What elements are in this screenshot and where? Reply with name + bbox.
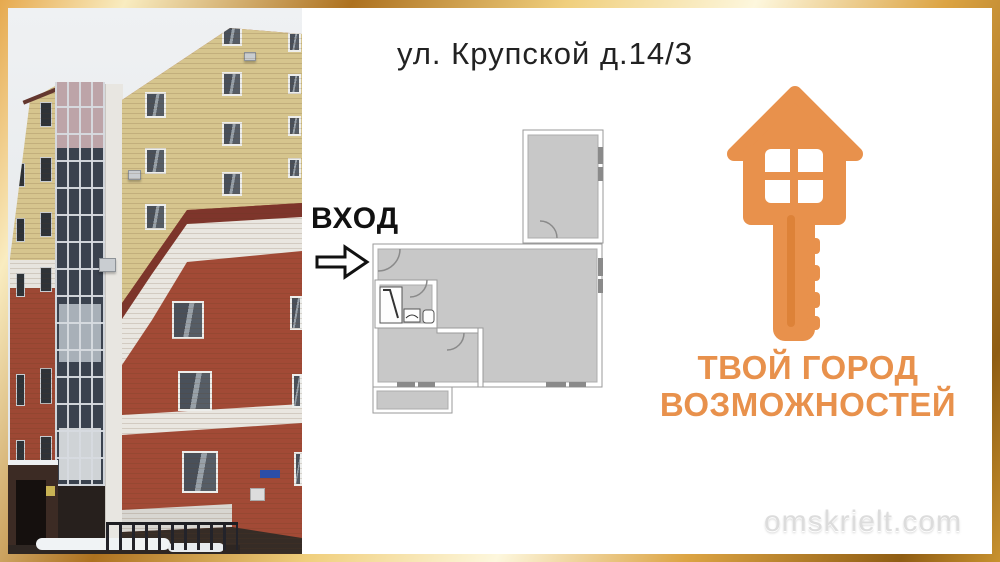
toilet [423,310,434,323]
metal-fence [106,522,238,550]
ac-unit [99,258,116,272]
house-key-icon [723,83,873,368]
gold-frame: ул. Крупской д.14/3 ВХОД [0,0,1000,562]
address-title: ул. Крупской д.14/3 [320,36,770,72]
brand-slogan: ТВОЙ ГОРОД ВОЗМОЖНОСТЕЙ [638,349,978,423]
balcony [377,391,448,409]
top-room [528,135,598,238]
address-plaque [260,470,280,478]
slogan-line-1: ТВОЙ ГОРОД [638,349,978,386]
site-watermark: omskrielt.com [764,505,962,539]
small-sign [46,486,55,496]
entrance-arrow-icon [314,244,370,285]
ad-canvas: ул. Крупской д.14/3 ВХОД [8,8,992,554]
floor-plan [365,122,615,429]
notice-sign [250,488,265,501]
glass-stairwell [55,82,105,486]
white-column [105,84,123,554]
slogan-line-2: ВОЗМОЖНОСТЕЙ [638,386,978,423]
building-photo [8,8,302,554]
